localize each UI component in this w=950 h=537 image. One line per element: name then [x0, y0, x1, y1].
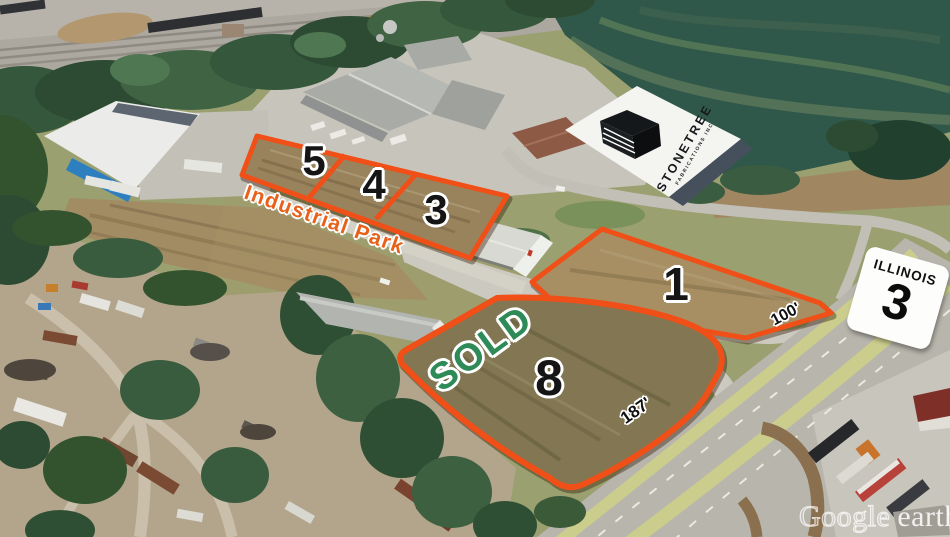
lot-4-label: 4	[362, 161, 385, 209]
lot-8-label: 8	[535, 349, 563, 407]
aerial-lot-map: 5 4 3 1 8 Industrial Park SOLD 100' 187'…	[0, 0, 950, 537]
lot-1-label: 1	[663, 257, 689, 311]
watermark-brand: Google	[799, 500, 890, 533]
aerial-basemap	[0, 0, 950, 537]
route-shield-number: 3	[877, 276, 916, 328]
google-earth-watermark: Googleearth	[799, 500, 950, 534]
train-cars	[0, 4, 45, 10]
watermark-product: earth	[897, 500, 950, 533]
lot-3-label: 3	[424, 186, 447, 234]
lot-5-label: 5	[302, 137, 325, 185]
